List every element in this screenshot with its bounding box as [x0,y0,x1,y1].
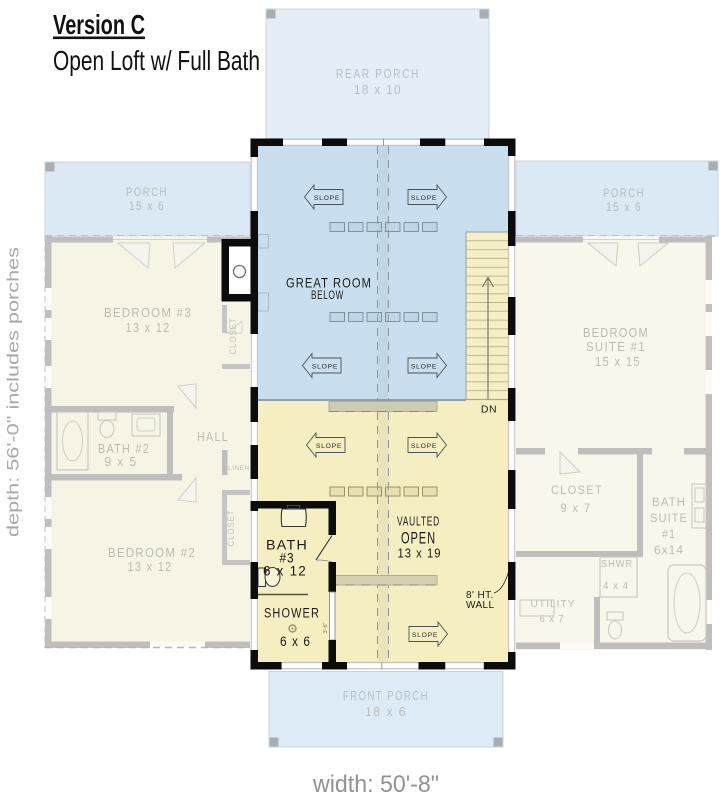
svg-text:4 x 4: 4 x 4 [603,581,629,592]
svg-text:PORCH: PORCH [603,186,645,200]
svg-text:6x14: 6x14 [654,545,684,557]
svg-text:BEDROOM: BEDROOM [583,325,649,340]
svg-text:SLOPE: SLOPE [314,195,340,202]
svg-text:VAULTED: VAULTED [397,514,440,529]
svg-text:CLOSET: CLOSET [228,318,239,355]
svg-text:Version C: Version C [53,9,145,40]
svg-text:WALL: WALL [466,600,494,611]
svg-text:15 x 6: 15 x 6 [129,199,165,213]
svg-text:6 x 6: 6 x 6 [280,634,311,649]
svg-text:13 x 19: 13 x 19 [398,546,442,561]
svg-text:BELOW: BELOW [311,290,344,302]
svg-text:6 x 12: 6 x 12 [263,564,307,579]
svg-text:PORCH: PORCH [126,185,168,199]
svg-text:HALL: HALL [197,430,229,444]
svg-text:15 x 6: 15 x 6 [606,200,642,214]
svg-text:13 x 12: 13 x 12 [128,559,173,574]
svg-text:BATH: BATH [652,497,686,509]
svg-text:Open Loft w/ Full Bath: Open Loft w/ Full Bath [53,45,260,76]
svg-text:18 x 6: 18 x 6 [365,705,407,719]
svg-text:FRONT PORCH: FRONT PORCH [343,689,429,703]
svg-text:#1: #1 [662,529,676,541]
svg-text:SLOPE: SLOPE [316,443,342,450]
svg-text:18 x 10: 18 x 10 [354,83,402,97]
svg-text:DN: DN [481,404,497,416]
svg-text:13 x 12: 13 x 12 [126,320,171,335]
svg-text:CLOSET: CLOSET [226,510,237,547]
svg-text:SLOPE: SLOPE [411,443,437,450]
svg-text:SUITE: SUITE [650,513,688,525]
svg-text:9 x 7: 9 x 7 [561,501,592,515]
svg-text:15 x 15: 15 x 15 [595,354,641,369]
svg-text:6 x 7: 6 x 7 [540,613,565,625]
svg-text:SHWR: SHWR [601,559,633,570]
svg-text:3'-6": 3'-6" [323,622,329,633]
svg-text:SHOWER: SHOWER [264,606,320,621]
svg-text:SUITE #1: SUITE #1 [586,339,646,354]
svg-text:GREAT ROOM: GREAT ROOM [286,275,372,291]
svg-text:9 x 5: 9 x 5 [105,455,138,469]
svg-text:SLOPE: SLOPE [411,195,437,202]
svg-text:width: 50'-8": width: 50'-8" [312,771,439,798]
svg-text:SLOPE: SLOPE [412,632,438,639]
svg-text:depth: 56'-0" includes porches: depth: 56'-0" includes porches [4,247,23,537]
svg-text:REAR PORCH: REAR PORCH [336,67,420,81]
svg-text:SLOPE: SLOPE [411,364,437,371]
svg-text:BEDROOM #2: BEDROOM #2 [108,545,196,560]
svg-text:SLOPE: SLOPE [312,364,338,371]
svg-text:CLOSET: CLOSET [551,483,603,497]
svg-text:BATH #2: BATH #2 [98,442,150,456]
svg-text:BEDROOM #3: BEDROOM #3 [104,305,192,320]
svg-text:LINEN: LINEN [228,465,250,472]
